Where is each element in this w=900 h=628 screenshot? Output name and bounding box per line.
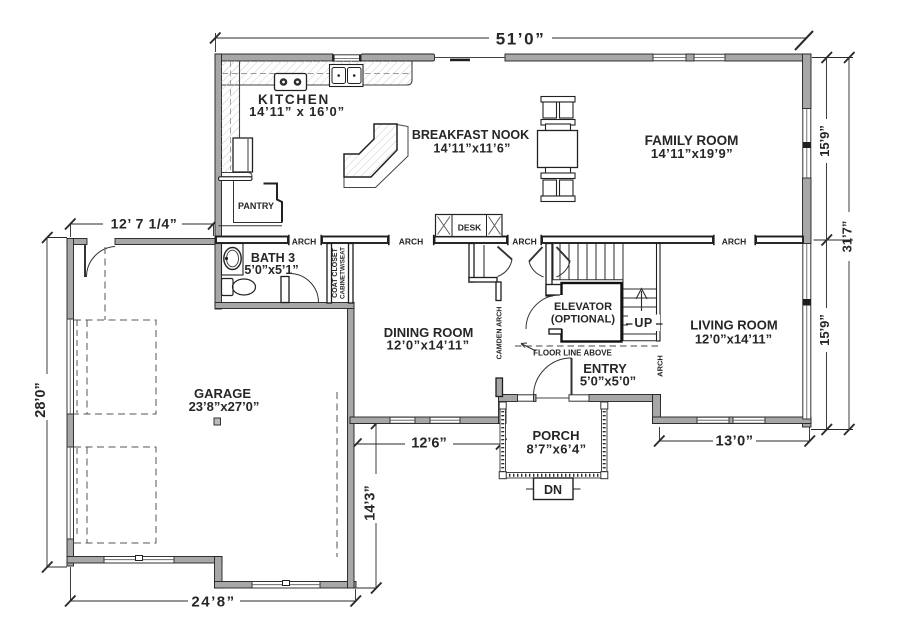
svg-text:12’0”x14’11”: 12’0”x14’11” <box>386 338 469 353</box>
svg-text:14’3”: 14’3” <box>363 485 379 520</box>
svg-text:14’11” x 16’0”: 14’11” x 16’0” <box>249 104 345 119</box>
svg-text:FLOOR LINE ABOVE: FLOOR LINE ABOVE <box>533 349 612 358</box>
svg-text:ARCH: ARCH <box>399 237 424 247</box>
svg-text:UP: UP <box>634 316 652 330</box>
svg-text:14’11”x19’9”: 14’11”x19’9” <box>651 146 733 161</box>
svg-text:14’11”x11’6”: 14’11”x11’6” <box>433 142 510 156</box>
svg-text:23’8”x27’0”: 23’8”x27’0” <box>189 399 260 414</box>
svg-text:LIVING ROOM: LIVING ROOM <box>690 318 777 333</box>
svg-text:CAMDEN ARCH: CAMDEN ARCH <box>497 307 504 360</box>
svg-text:5’0”x5’1”: 5’0”x5’1” <box>244 263 298 277</box>
svg-text:BREAKFAST NOOK: BREAKFAST NOOK <box>412 128 529 142</box>
svg-text:DESK: DESK <box>458 223 482 233</box>
svg-text:24’8”: 24’8” <box>191 594 235 611</box>
svg-text:8’7”x6’4”: 8’7”x6’4” <box>527 442 587 457</box>
svg-text:(OPTIONAL): (OPTIONAL) <box>551 314 615 326</box>
svg-text:CABINETW/SEAT: CABINETW/SEAT <box>340 247 347 299</box>
svg-text:COAT CLOSET: COAT CLOSET <box>332 247 339 297</box>
svg-text:5’0”x5’0”: 5’0”x5’0” <box>580 374 636 389</box>
svg-text:12’0”x14’11”: 12’0”x14’11” <box>695 332 772 347</box>
svg-text:15’9”: 15’9” <box>817 125 832 157</box>
svg-text:ARCH: ARCH <box>722 237 747 247</box>
svg-text:15’9”: 15’9” <box>817 314 832 346</box>
svg-text:31’7”: 31’7” <box>840 221 855 253</box>
svg-text:ARCH: ARCH <box>512 237 537 247</box>
svg-text:12’6”: 12’6” <box>411 436 446 452</box>
svg-text:28’0”: 28’0” <box>33 382 49 417</box>
svg-text:DN: DN <box>544 483 562 497</box>
svg-text:51’0”: 51’0” <box>496 30 546 49</box>
svg-text:ARCH: ARCH <box>656 355 665 377</box>
svg-text:13’0”: 13’0” <box>716 434 754 450</box>
svg-text:PANTRY: PANTRY <box>238 201 274 211</box>
svg-text:12’ 7 1/4”: 12’ 7 1/4” <box>111 216 178 232</box>
svg-text:ARCH: ARCH <box>292 237 317 247</box>
svg-text:ELEVATOR: ELEVATOR <box>554 301 612 313</box>
